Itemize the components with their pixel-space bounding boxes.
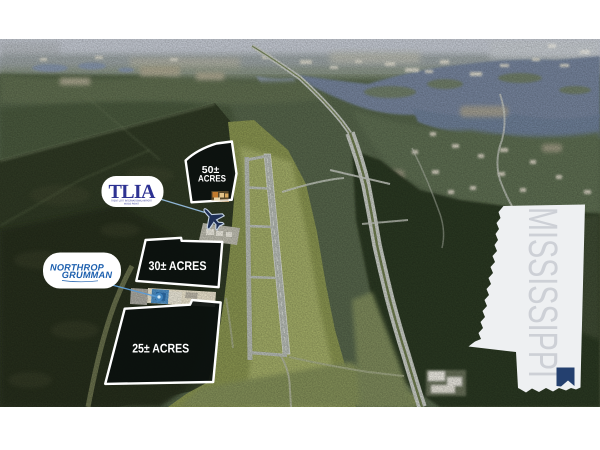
svg-text:MOSS POINT: MOSS POINT (124, 202, 140, 205)
svg-text:GRUMMAN: GRUMMAN (62, 270, 113, 280)
svg-text:ACRES: ACRES (198, 174, 226, 184)
svg-text:25± ACRES: 25± ACRES (132, 342, 189, 356)
svg-text:MISSISSIPPI: MISSISSIPPI (520, 207, 566, 378)
svg-text:30± ACRES: 30± ACRES (149, 259, 207, 273)
